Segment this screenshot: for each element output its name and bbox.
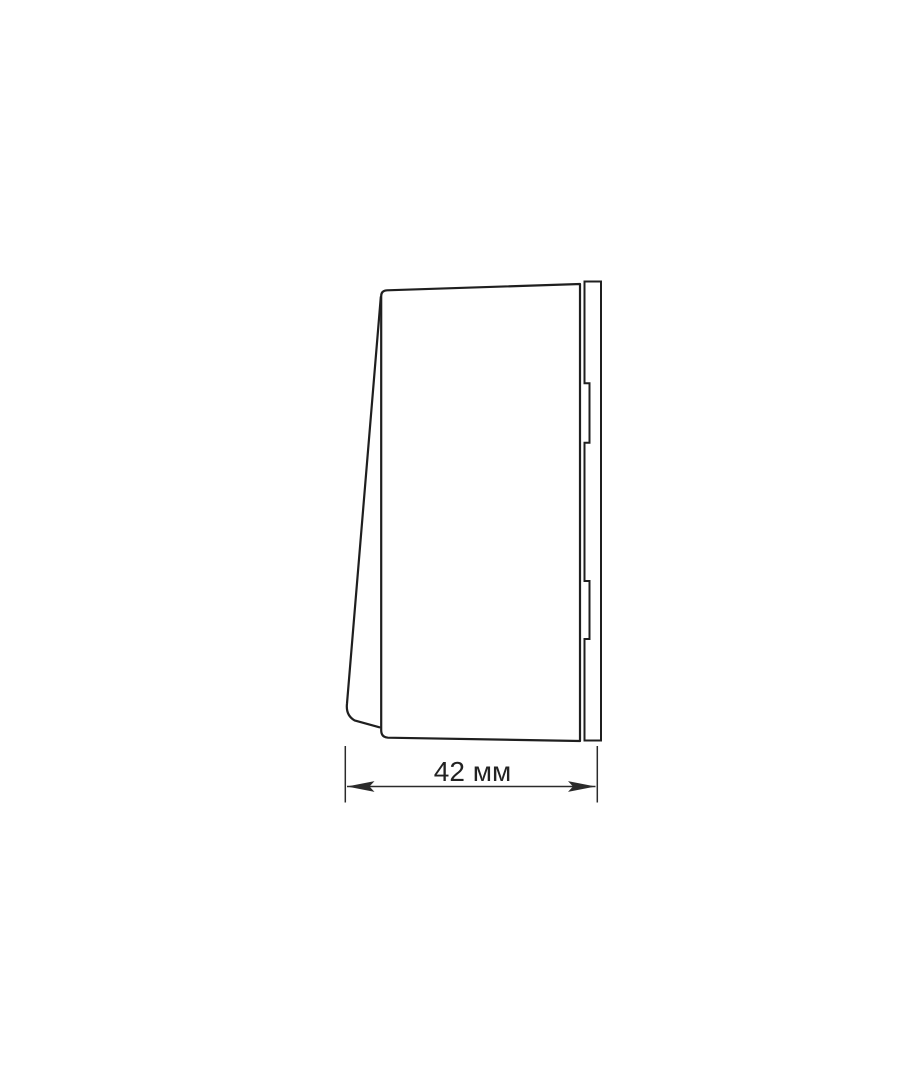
switch-body-outline — [381, 284, 580, 741]
product-drawing-page: 42 мм — [0, 0, 910, 1080]
mounting-plate-outline — [585, 282, 602, 741]
dimension-label: 42 мм — [434, 756, 511, 787]
rocker-outline — [347, 297, 381, 727]
switch-side-view-drawing: 42 мм — [0, 0, 910, 1080]
